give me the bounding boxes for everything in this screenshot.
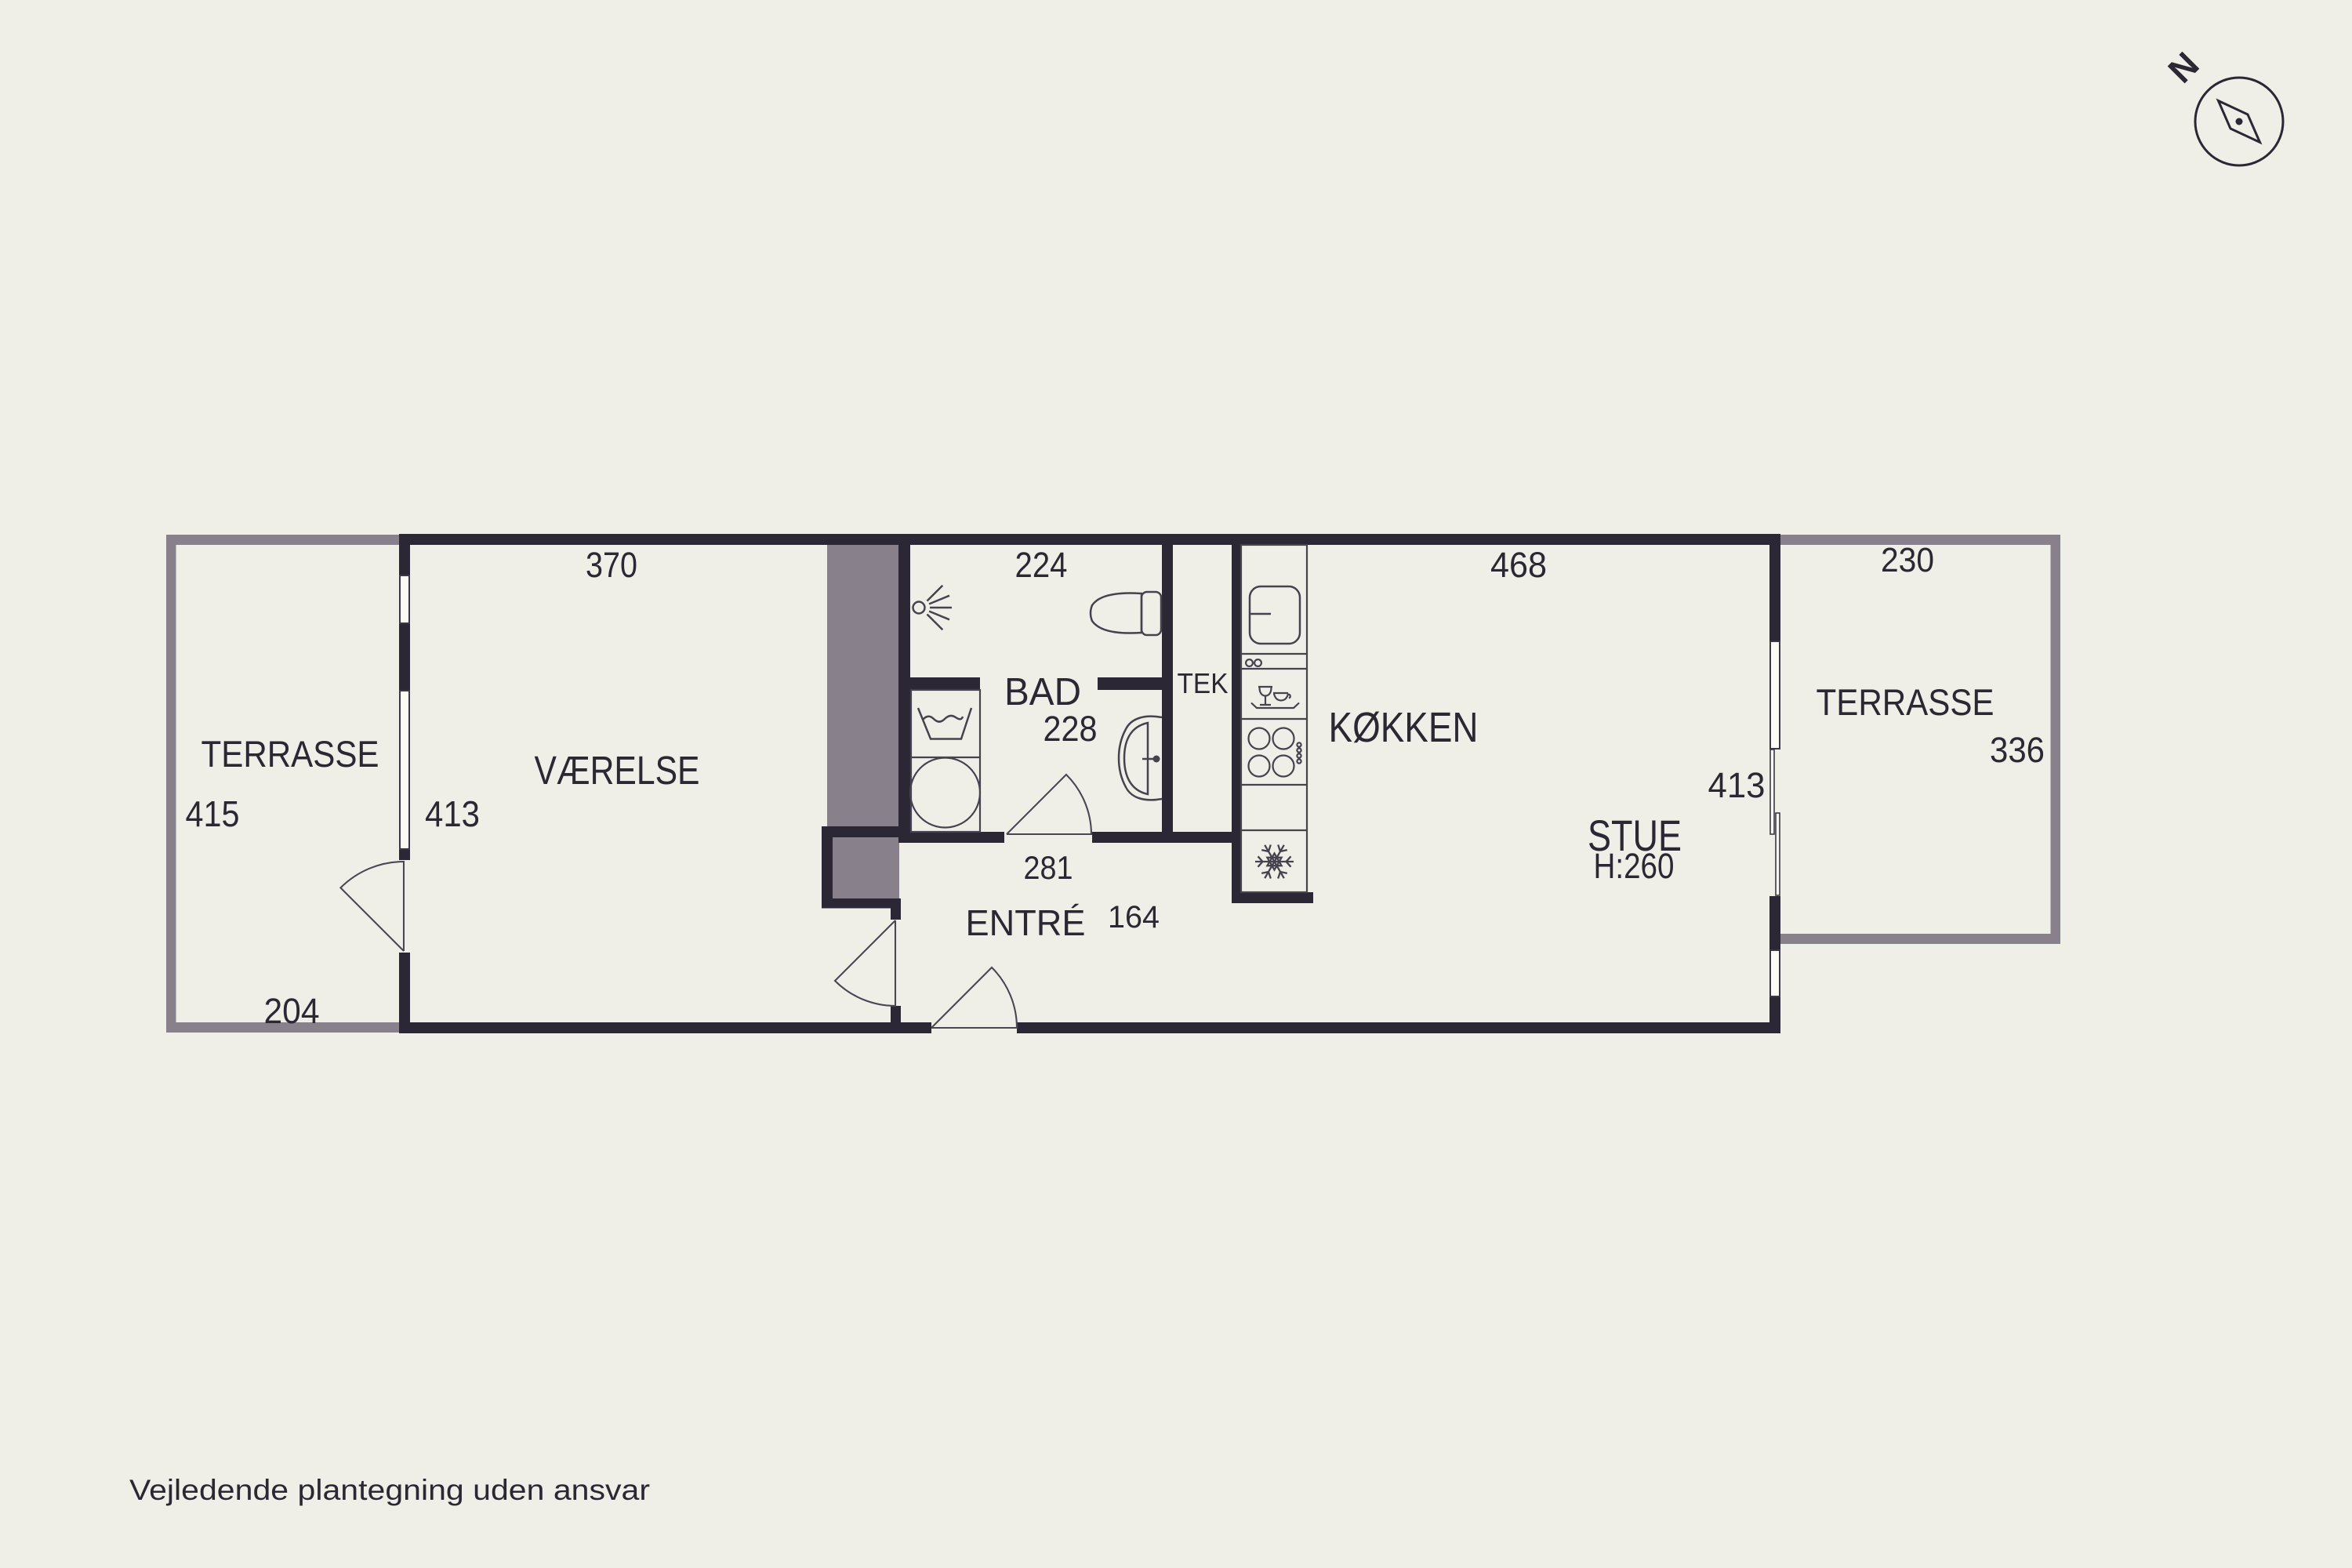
svg-text:164: 164 xyxy=(1108,900,1160,935)
svg-text:ENTRÉ: ENTRÉ xyxy=(966,902,1086,943)
svg-text:H:260: H:260 xyxy=(1594,846,1675,886)
svg-text:228: 228 xyxy=(1044,709,1098,749)
svg-text:336: 336 xyxy=(1990,730,2045,770)
svg-text:TEK: TEK xyxy=(1178,667,1229,699)
svg-text:413: 413 xyxy=(1708,765,1766,805)
svg-text:Vejledende plantegning uden an: Vejledende plantegning uden ansvar xyxy=(129,1473,650,1506)
svg-text:204: 204 xyxy=(264,991,320,1031)
svg-text:TERRASSE: TERRASSE xyxy=(1817,681,1994,723)
svg-text:BAD: BAD xyxy=(1004,671,1081,713)
svg-text:224: 224 xyxy=(1015,545,1068,585)
svg-text:413: 413 xyxy=(425,793,480,834)
svg-text:415: 415 xyxy=(186,793,240,834)
svg-text:370: 370 xyxy=(586,545,637,585)
svg-text:281: 281 xyxy=(1024,849,1073,886)
svg-text:KØKKEN: KØKKEN xyxy=(1329,704,1479,751)
svg-text:230: 230 xyxy=(1881,541,1934,579)
svg-text:VÆRELSE: VÆRELSE xyxy=(535,748,700,793)
svg-text:468: 468 xyxy=(1490,545,1547,585)
svg-text:TERRASSE: TERRASSE xyxy=(201,733,379,775)
